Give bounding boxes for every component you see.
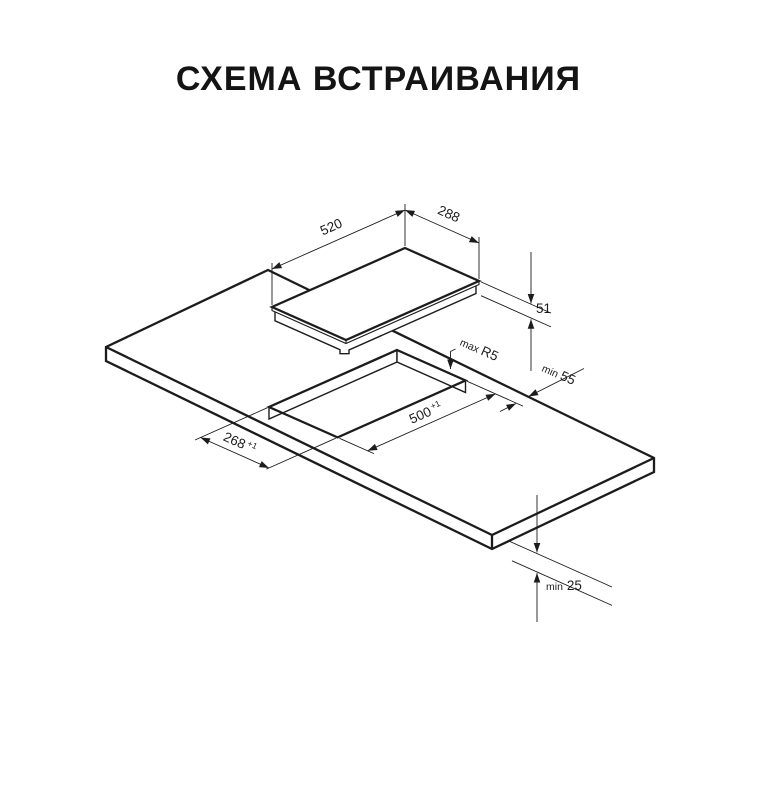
installation-diagram: 520 288 51 maxR5 min55 [0,0,757,800]
corner-radius-label: maxR5 [458,334,501,364]
hob-height-label: 51 [536,301,551,316]
hob-width-label: 520 [318,215,345,238]
bottom-clearance-label: min25 [546,578,582,593]
hob-depth-label: 288 [435,202,462,225]
edge-distance-label: min55 [540,360,578,388]
page: СХЕМА ВСТРАИВАНИЯ [0,0,757,800]
